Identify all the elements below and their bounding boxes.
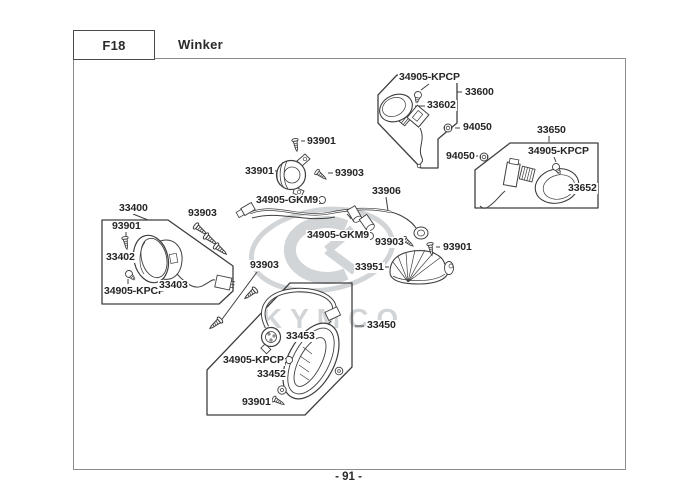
part-label-93901-c: 93901 [111, 221, 142, 232]
part-label-34905-gkm9-b: 34905-GKM9 [306, 230, 370, 241]
part-label-33400: 33400 [118, 203, 149, 214]
leader-lines [126, 84, 565, 402]
part-label-93901-d: 93901 [241, 397, 272, 408]
page-number: - 91 - [73, 471, 624, 483]
screw-icon [122, 236, 131, 250]
part-label-33452: 33452 [256, 369, 287, 380]
part-label-93903-a: 93903 [334, 168, 365, 179]
section-title: Winker [178, 37, 223, 52]
part-label-93903-c: 93903 [187, 208, 218, 219]
part-label-34905-kpcp-a: 34905-KPCP [398, 72, 461, 83]
lamp-socket [503, 158, 520, 187]
winker-lamp-33951-drawing [390, 250, 454, 284]
bulb-icon [413, 91, 422, 104]
harness-round-connector [414, 227, 428, 239]
part-label-33951: 33951 [354, 262, 385, 273]
winker-relay-33901-drawing [277, 154, 311, 197]
part-label-34905-kpcp-c: 34905-KPCP [103, 286, 166, 297]
part-label-93901-a: 93901 [306, 136, 337, 147]
part-label-94050-a: 94050 [462, 122, 493, 133]
part-label-34905-kpcp-d: 34905-KPCP [222, 355, 285, 366]
part-label-33652: 33652 [567, 183, 598, 194]
lamp-neck-ribs [519, 166, 535, 182]
bulb-icon [124, 269, 137, 282]
part-label-34905-gkm9-a: 34905-GKM9 [255, 195, 319, 206]
parts-catalog-page: F18 Winker [0, 0, 700, 495]
part-label-34905-kpcp-b: 34905-KPCP [527, 146, 590, 157]
screw-icon [292, 138, 301, 152]
section-code: F18 [102, 38, 125, 53]
screw-icon [314, 169, 328, 182]
part-label-33650: 33650 [536, 125, 567, 136]
part-label-33453: 33453 [285, 331, 316, 342]
screw-icon [271, 396, 285, 408]
part-label-93903-b: 93903 [374, 237, 405, 248]
part-label-94050-b: 94050 [445, 151, 476, 162]
nut-icon [444, 124, 452, 132]
screw-icon [212, 242, 228, 257]
part-label-33450: 33450 [366, 320, 397, 331]
nut-icon [480, 153, 488, 161]
part-label-33901: 33901 [244, 166, 275, 177]
harness-connector [236, 203, 256, 219]
fasteners [122, 91, 563, 407]
lamp-lens [375, 89, 417, 127]
part-label-33602: 33602 [426, 100, 457, 111]
diagram-svg: KYMCO [0, 0, 700, 495]
part-label-33402: 33402 [105, 252, 136, 263]
part-label-33403: 33403 [158, 280, 189, 291]
part-label-93903-d: 93903 [249, 260, 280, 271]
round-connector [262, 328, 281, 347]
part-label-33906: 33906 [371, 186, 402, 197]
section-code-box: F18 [73, 30, 155, 60]
screw-icon [208, 316, 224, 331]
part-label-33600: 33600 [464, 87, 495, 98]
part-label-93901-b: 93901 [442, 242, 473, 253]
